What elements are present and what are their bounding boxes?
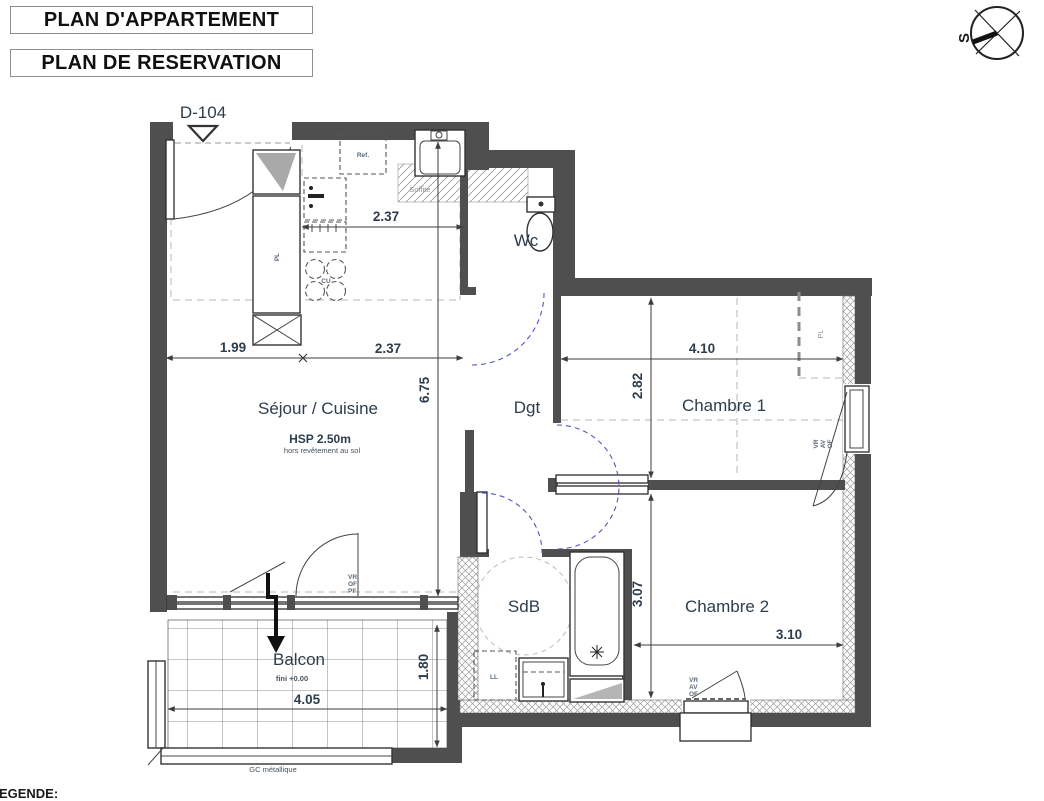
floor-plan-drawing: D-104 — [0, 0, 1044, 800]
tag-window-ch2: VR AV OF — [689, 677, 698, 698]
svg-text:PF: PF — [348, 588, 356, 595]
unit-id: D-104 — [180, 103, 226, 122]
wall-sdb-dgt — [460, 492, 477, 557]
wall-left — [150, 140, 167, 612]
wall-wc-right — [553, 150, 575, 295]
wall-chambre1-left — [553, 296, 561, 423]
wall-chambre1-top — [553, 278, 872, 296]
sliding-door — [556, 475, 648, 494]
sdb-door-leaf — [477, 492, 487, 553]
tag-pl-kitchen: PL — [274, 253, 281, 261]
svg-text:VR: VR — [813, 439, 820, 448]
balcony-slab-bottom — [392, 748, 462, 763]
balcony-access-arrow — [267, 573, 285, 653]
bathroom — [474, 492, 624, 702]
svg-text:VR: VR — [689, 677, 698, 684]
kitchen-sink-unit — [304, 178, 346, 220]
wall-right-exterior — [855, 296, 871, 722]
dim-balcon-depth: 1.80 — [416, 654, 431, 680]
sink-faucet-icon — [308, 194, 324, 198]
tag-pl-ch1: PL — [816, 329, 825, 338]
wall-sdb-left-insulation — [458, 557, 478, 700]
balcony-window-band — [167, 533, 458, 610]
svg-text:VR: VR — [348, 574, 357, 581]
dim-ch2-depth: 3.07 — [630, 581, 645, 607]
wall-ch1-ch2 — [648, 480, 845, 490]
balcony-tile-floor — [168, 620, 447, 748]
wall-wc-left — [460, 168, 468, 288]
svg-text:OF: OF — [827, 439, 834, 448]
wall-sejour-dgt — [465, 430, 474, 492]
label-sdb: SdB — [508, 597, 540, 616]
svg-text:OF: OF — [348, 581, 357, 588]
floor-plan-page: { "titles": { "plan_appartement": "PLAN … — [0, 0, 1044, 800]
dim-kitchen-counter: 2.37 — [373, 209, 399, 224]
label-sejour-height: HSP 2.50m — [289, 432, 351, 446]
balcony — [148, 612, 462, 765]
bathtub-faucet-icon — [590, 645, 604, 659]
wall-bottom-exterior — [460, 713, 871, 727]
balcony-door-leaf2 — [230, 562, 285, 592]
dim-ch1-depth: 2.82 — [630, 373, 645, 399]
door-swings — [472, 293, 619, 553]
label-sejour: Séjour / Cuisine — [258, 399, 378, 418]
wall-wc-bottom-stub — [460, 287, 476, 295]
label-railing-type: GC métallique — [249, 765, 297, 774]
svg-text:AV: AV — [689, 684, 698, 691]
tag-window-balcon: VR OF PF — [348, 574, 357, 595]
label-balcon-level: fini +0.00 — [276, 674, 308, 683]
svg-text:AV: AV — [820, 439, 827, 448]
tag-window-ch1: VR AV OF — [813, 439, 834, 448]
compass: S — [956, 7, 1023, 59]
tag-cooktop: CU — [321, 278, 331, 285]
label-sejour-note: hors revêtement au sol — [284, 446, 361, 455]
dim-kitchen-width: 2.37 — [375, 341, 401, 356]
tag-washing-machine: LL — [490, 674, 498, 681]
tag-fridge: Ref. — [357, 152, 369, 159]
sdb-door-swing — [482, 493, 542, 553]
compass-south-label: S — [956, 33, 973, 43]
kitchen-counter-sink — [415, 130, 465, 176]
dim-ch2-width: 3.10 — [776, 627, 802, 642]
dim-sejour-depth: 6.75 — [417, 376, 432, 403]
dim-ch1-width: 4.10 — [689, 341, 715, 356]
wall-bottom-insulation — [460, 700, 855, 713]
wc-door-swing — [472, 293, 544, 365]
entrance-marker-triangle — [189, 126, 217, 141]
label-dgt: Dgt — [514, 398, 541, 417]
tag-soffit: Soffite — [409, 185, 430, 194]
wall-right-insulation — [843, 296, 855, 722]
dim-entry-width: 1.99 — [220, 340, 246, 355]
svg-text:OF: OF — [689, 691, 698, 698]
entrance-door-leaf — [166, 140, 174, 219]
kitchen — [253, 130, 465, 345]
label-wc: Wc — [514, 231, 539, 250]
label-balcon: Balcon — [273, 650, 325, 669]
label-chambre1: Chambre 1 — [682, 396, 766, 415]
label-chambre2: Chambre 2 — [685, 597, 769, 616]
dim-balcon-width: 4.05 — [294, 692, 321, 707]
